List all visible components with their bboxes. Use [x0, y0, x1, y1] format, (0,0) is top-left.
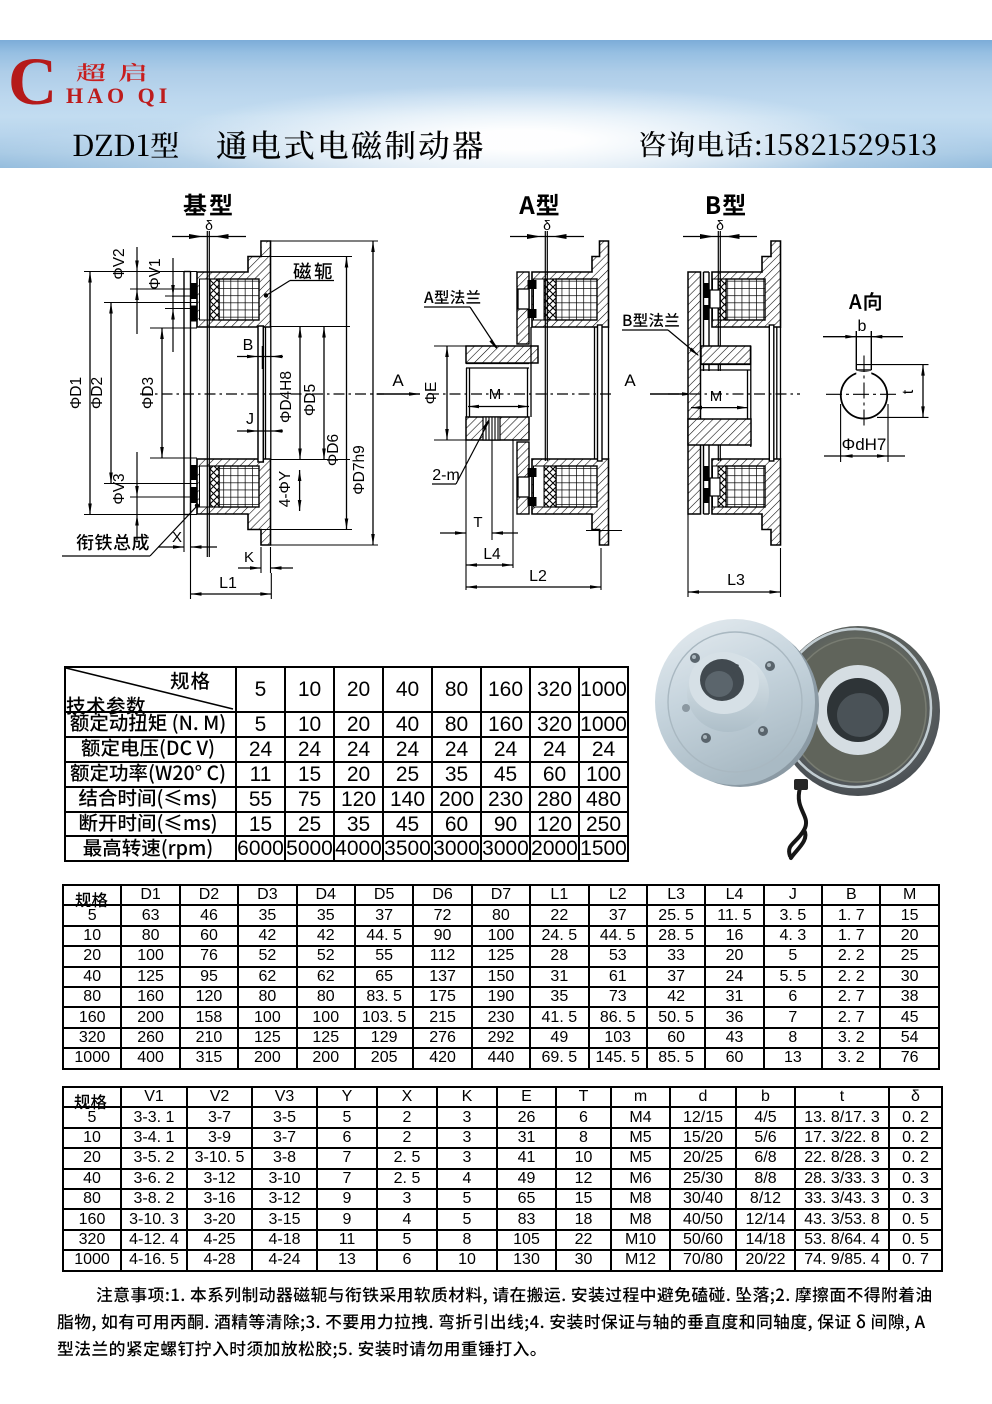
svg-text:ΦD5: ΦD5: [302, 384, 319, 416]
svg-text:δ: δ: [543, 217, 551, 233]
svg-text:ΦE: ΦE: [423, 382, 440, 405]
svg-text:M: M: [710, 388, 723, 405]
svg-text:ΦV1: ΦV1: [147, 258, 164, 289]
svg-text:2-m: 2-m: [432, 467, 460, 484]
svg-text:T: T: [473, 514, 482, 531]
svg-text:ΦD1: ΦD1: [68, 377, 85, 409]
svg-text:M: M: [489, 386, 502, 403]
svg-text:L2: L2: [529, 568, 547, 585]
svg-text:δ: δ: [205, 217, 213, 233]
svg-text:4-ΦY: 4-ΦY: [277, 471, 294, 508]
svg-text:ΦD2: ΦD2: [89, 377, 106, 409]
svg-text:J: J: [246, 411, 254, 428]
svg-text:K: K: [244, 549, 254, 566]
svg-text:δ: δ: [716, 217, 724, 233]
svg-text:ΦdH7: ΦdH7: [842, 435, 887, 454]
svg-text:ΦD3: ΦD3: [140, 377, 157, 409]
svg-text:t: t: [900, 389, 917, 394]
svg-text:ΦD6: ΦD6: [325, 434, 342, 466]
svg-text:L3: L3: [727, 572, 745, 589]
svg-text:A: A: [392, 371, 404, 390]
svg-text:ΦV2: ΦV2: [111, 248, 128, 279]
svg-text:L1: L1: [219, 575, 237, 592]
svg-text:ΦD7h9: ΦD7h9: [351, 445, 368, 494]
svg-text:ΦD4H8: ΦD4H8: [278, 371, 295, 423]
svg-text:A: A: [624, 371, 636, 390]
svg-text:X: X: [172, 529, 182, 546]
svg-text:B: B: [243, 337, 254, 354]
svg-text:ΦV3: ΦV3: [111, 473, 128, 504]
svg-text:L4: L4: [483, 546, 501, 563]
svg-text:b: b: [858, 318, 867, 335]
